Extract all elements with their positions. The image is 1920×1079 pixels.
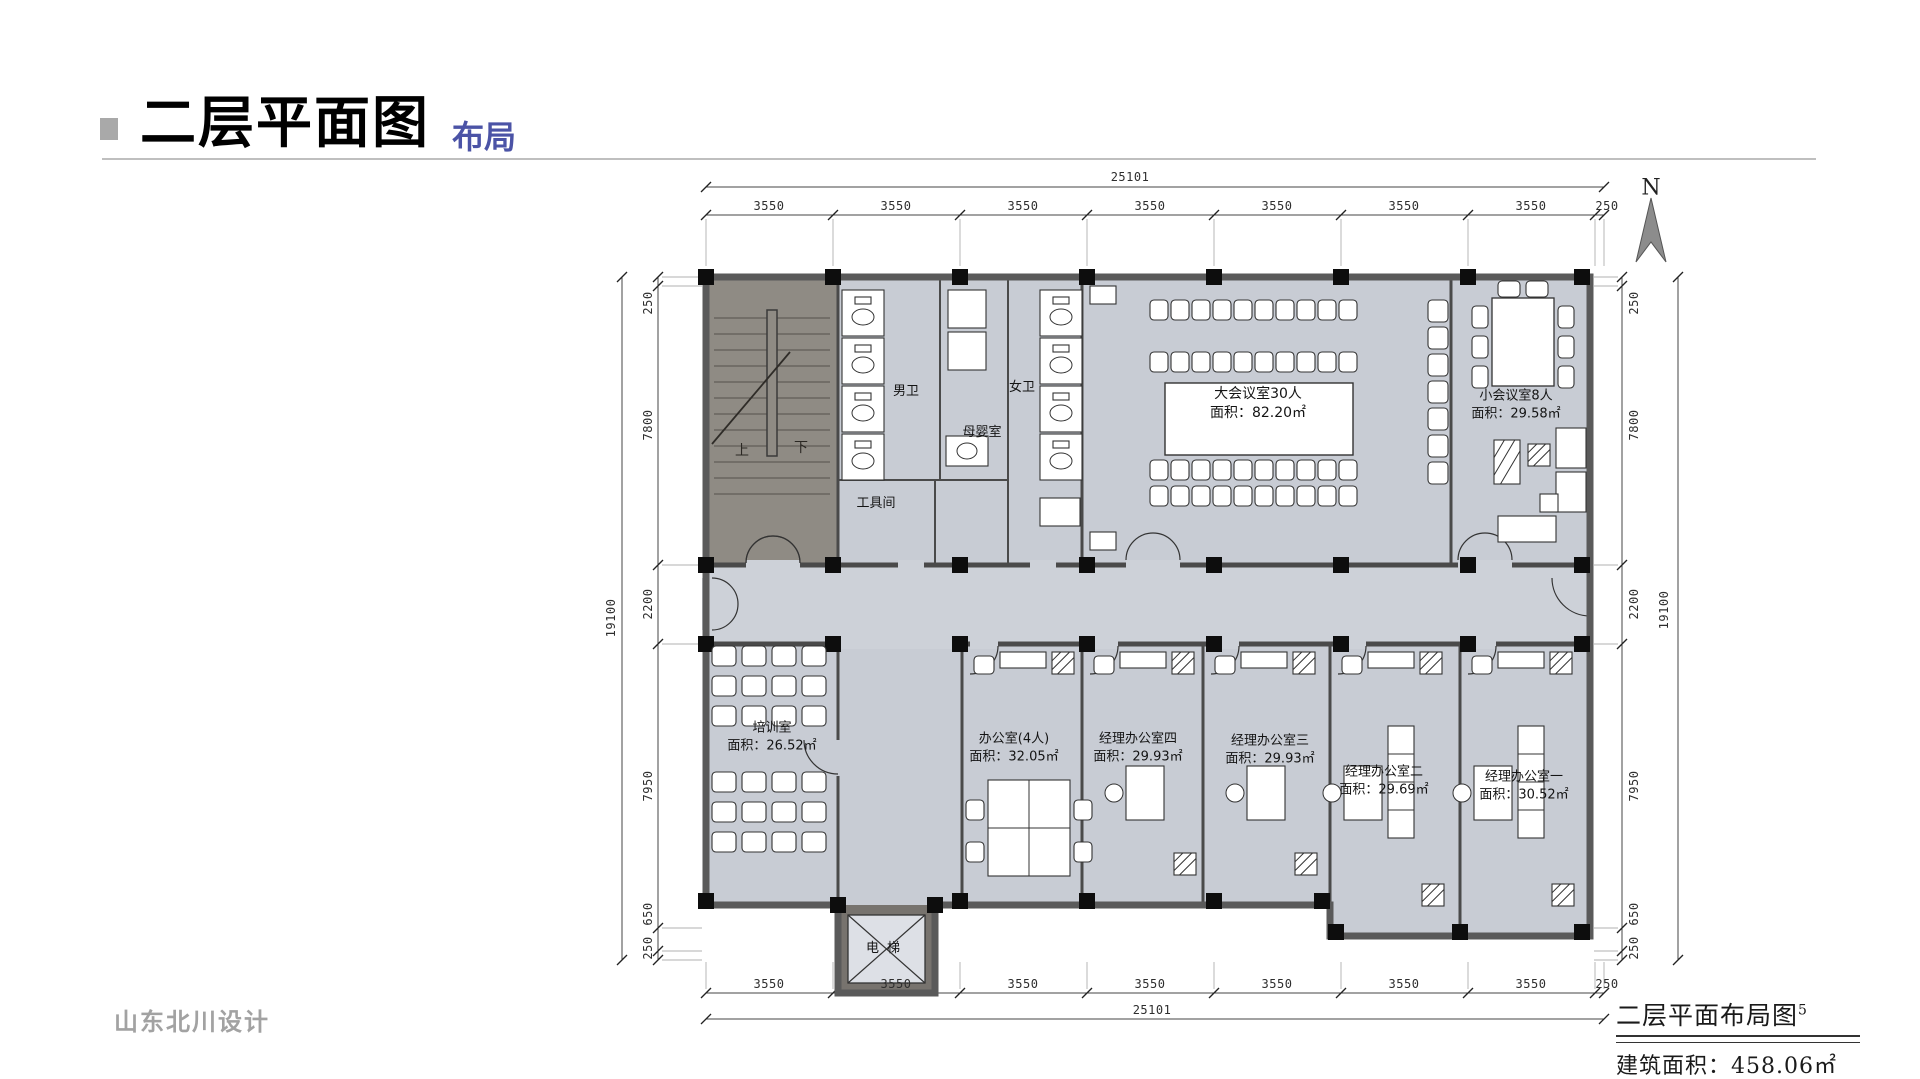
title-block: 二层平面布局图5 建筑面积：458.06㎡	[1616, 996, 1860, 1079]
dimension-label: 3550	[881, 199, 912, 213]
dimension-label: 3550	[1135, 199, 1166, 213]
north-label: N	[1641, 176, 1660, 201]
room-label-mens-wc: 男卫	[893, 383, 919, 401]
room-name: 母婴室	[962, 424, 1001, 442]
room-name: 电梯	[866, 940, 908, 958]
dimension-label: 2200	[1627, 589, 1641, 620]
room-name: 工具间	[856, 495, 895, 513]
title-block-divider	[1616, 1035, 1860, 1043]
dimension-label: 25101	[1111, 170, 1150, 184]
room-name: 经理办公室二	[1339, 763, 1428, 781]
dimension-label: 7800	[1627, 410, 1641, 441]
dimension-label: 250	[641, 936, 655, 959]
stair-down-label: 下	[794, 437, 808, 457]
room-area: 面积：26.52㎡	[727, 737, 816, 755]
dimension-label: 3550	[754, 977, 785, 991]
dimension-label: 3550	[1008, 199, 1039, 213]
room-name: 女卫	[1009, 379, 1035, 397]
dimension-label: 19100	[604, 599, 618, 638]
slide-canvas: 二层平面图 布局 N 大会议室30人 面积：82.20㎡ 小会议室8人 面积：2…	[0, 0, 1920, 1079]
room-label-nursing: 母婴室	[962, 424, 1001, 442]
dimension-label: 3550	[754, 199, 785, 213]
company-logo-text: 山东北川设计	[114, 1002, 270, 1037]
room-name: 男卫	[893, 383, 919, 401]
dimension-label: 250	[1595, 199, 1618, 213]
room-area: 面积：29.69㎡	[1339, 781, 1428, 799]
dimension-label: 25101	[1133, 1003, 1172, 1017]
room-name: 办公室(4人)	[969, 730, 1058, 748]
building-area-text: 建筑面积：458.06㎡	[1616, 1048, 1860, 1079]
dimension-label: 3550	[1389, 199, 1420, 213]
room-name: 经理办公室四	[1093, 730, 1182, 748]
dimension-label: 2200	[641, 589, 655, 620]
room-name: 大会议室30人	[1210, 385, 1306, 404]
dimension-label: 3550	[1516, 199, 1547, 213]
dimension-label: 650	[641, 902, 655, 925]
room-label-elevator: 电梯	[866, 940, 908, 958]
room-area: 面积：29.93㎡	[1225, 750, 1314, 768]
dimension-label: 19100	[1657, 591, 1671, 630]
room-label-manager1: 经理办公室一 面积：30.52㎡	[1479, 768, 1568, 803]
room-label-tool-room: 工具间	[856, 495, 895, 513]
dimension-label: 650	[1627, 902, 1641, 925]
room-label-womens-wc: 女卫	[1009, 379, 1035, 397]
dimension-label: 3550	[1389, 977, 1420, 991]
dimension-label: 7950	[641, 771, 655, 802]
dimension-label: 3550	[1516, 977, 1547, 991]
room-label-training: 培训室 面积：26.52㎡	[727, 719, 816, 754]
room-area: 面积：29.58㎡	[1471, 405, 1560, 423]
room-area: 面积：30.52㎡	[1479, 786, 1568, 804]
room-name: 小会议室8人	[1471, 387, 1560, 405]
dimension-label: 250	[1595, 977, 1618, 991]
stair-up-label: 上	[735, 440, 749, 460]
dimension-label: 3550	[1262, 199, 1293, 213]
room-area: 面积：32.05㎡	[969, 748, 1058, 766]
room-area: 面积：29.93㎡	[1093, 748, 1182, 766]
dimension-label: 250	[1627, 291, 1641, 314]
drawing-title-row: 二层平面布局图5	[1616, 996, 1860, 1032]
dimension-label: 7950	[1627, 771, 1641, 802]
room-label-manager2: 经理办公室二 面积：29.69㎡	[1339, 763, 1428, 798]
room-name: 培训室	[727, 719, 816, 737]
dimension-label: 3550	[1262, 977, 1293, 991]
room-label-manager3: 经理办公室三 面积：29.93㎡	[1225, 732, 1314, 767]
dimension-label: 250	[641, 291, 655, 314]
room-label-small-meeting: 小会议室8人 面积：29.58㎡	[1471, 387, 1560, 422]
dimension-label: 3550	[1135, 977, 1166, 991]
dimension-label: 7800	[641, 410, 655, 441]
dimension-label: 250	[1627, 936, 1641, 959]
room-name: 经理办公室三	[1225, 732, 1314, 750]
dimension-label: 3550	[881, 977, 912, 991]
room-area: 面积：82.20㎡	[1210, 404, 1306, 423]
room-label-manager4: 经理办公室四 面积：29.93㎡	[1093, 730, 1182, 765]
room-label-office4: 办公室(4人) 面积：32.05㎡	[969, 730, 1058, 765]
sheet-number: 5	[1798, 1003, 1808, 1019]
room-name: 经理办公室一	[1479, 768, 1568, 786]
room-label-main-meeting: 大会议室30人 面积：82.20㎡	[1210, 385, 1306, 423]
dimension-label: 3550	[1008, 977, 1039, 991]
drawing-title: 二层平面布局图	[1616, 1001, 1798, 1030]
